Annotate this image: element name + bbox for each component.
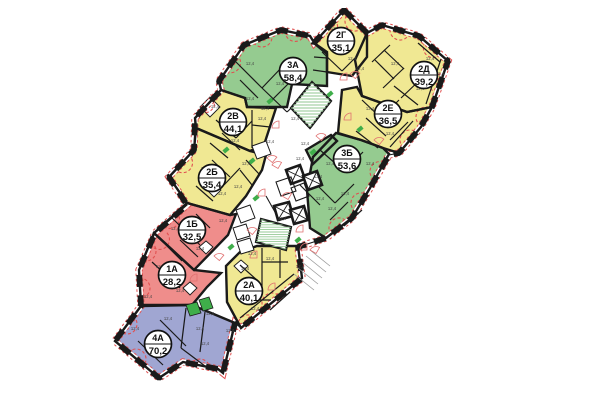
svg-text:36,5: 36,5 <box>379 116 398 127</box>
svg-text:2А: 2А <box>243 280 255 290</box>
svg-text:40,1: 40,1 <box>240 293 259 304</box>
svg-text:39,2: 39,2 <box>415 77 434 88</box>
svg-text:3А: 3А <box>287 60 299 70</box>
svg-text:12,4: 12,4 <box>301 141 310 146</box>
svg-text:12,4: 12,4 <box>196 246 205 251</box>
svg-text:53,6: 53,6 <box>338 161 357 172</box>
svg-text:12,4: 12,4 <box>251 306 260 311</box>
svg-text:12,4: 12,4 <box>258 116 267 121</box>
svg-text:12,4: 12,4 <box>261 106 270 111</box>
svg-text:12,4: 12,4 <box>196 326 205 331</box>
svg-text:12,4: 12,4 <box>164 316 173 321</box>
svg-text:12,4: 12,4 <box>219 218 228 223</box>
svg-text:12,4: 12,4 <box>246 96 255 101</box>
svg-text:12,4: 12,4 <box>248 251 257 256</box>
svg-text:12,4: 12,4 <box>231 138 240 143</box>
svg-text:2Г: 2Г <box>336 30 346 40</box>
svg-text:12,4: 12,4 <box>328 206 337 211</box>
svg-text:12,4: 12,4 <box>426 56 435 61</box>
svg-text:3Б: 3Б <box>341 148 353 158</box>
svg-text:12,4: 12,4 <box>356 66 365 71</box>
svg-text:12,4: 12,4 <box>131 326 140 331</box>
svg-text:12,4: 12,4 <box>366 161 375 166</box>
svg-text:12,4: 12,4 <box>218 191 227 196</box>
svg-text:12,4: 12,4 <box>386 131 395 136</box>
svg-text:70,2: 70,2 <box>149 346 168 357</box>
svg-text:35,4: 35,4 <box>203 180 222 191</box>
svg-text:12,4: 12,4 <box>296 156 305 161</box>
svg-text:2Д: 2Д <box>418 64 430 74</box>
svg-text:12,4: 12,4 <box>266 139 275 144</box>
svg-text:12,4: 12,4 <box>366 106 375 111</box>
svg-text:4А: 4А <box>152 333 164 343</box>
svg-text:12,4: 12,4 <box>348 56 357 61</box>
svg-text:12,4: 12,4 <box>176 288 185 293</box>
svg-text:12,4: 12,4 <box>266 256 275 261</box>
svg-text:12,4: 12,4 <box>296 264 305 269</box>
svg-text:2В: 2В <box>227 111 239 121</box>
svg-text:12,4: 12,4 <box>211 104 220 109</box>
svg-text:12,4: 12,4 <box>201 341 210 346</box>
svg-text:12,4: 12,4 <box>391 61 400 66</box>
svg-text:12,4: 12,4 <box>226 328 235 333</box>
svg-text:32,5: 32,5 <box>183 232 202 243</box>
svg-text:12,4: 12,4 <box>291 116 300 121</box>
svg-text:12,4: 12,4 <box>314 174 323 179</box>
svg-text:12,4: 12,4 <box>206 311 215 316</box>
svg-text:1Б: 1Б <box>186 219 198 229</box>
svg-text:28,2: 28,2 <box>163 277 182 288</box>
svg-text:12,4: 12,4 <box>242 161 251 166</box>
svg-text:12,4: 12,4 <box>341 191 350 196</box>
svg-text:12,4: 12,4 <box>246 61 255 66</box>
svg-text:2Е: 2Е <box>382 103 393 113</box>
svg-text:2Б: 2Б <box>206 167 218 177</box>
svg-text:35,1: 35,1 <box>332 43 351 54</box>
svg-text:44,1: 44,1 <box>224 124 243 135</box>
svg-text:1А: 1А <box>166 264 178 274</box>
svg-text:12,4: 12,4 <box>278 216 287 221</box>
svg-text:12,4: 12,4 <box>144 294 153 299</box>
svg-text:12,4: 12,4 <box>316 196 325 201</box>
svg-text:12,4: 12,4 <box>234 184 243 189</box>
svg-text:58,4: 58,4 <box>284 73 303 84</box>
svg-text:12,4: 12,4 <box>241 266 250 271</box>
